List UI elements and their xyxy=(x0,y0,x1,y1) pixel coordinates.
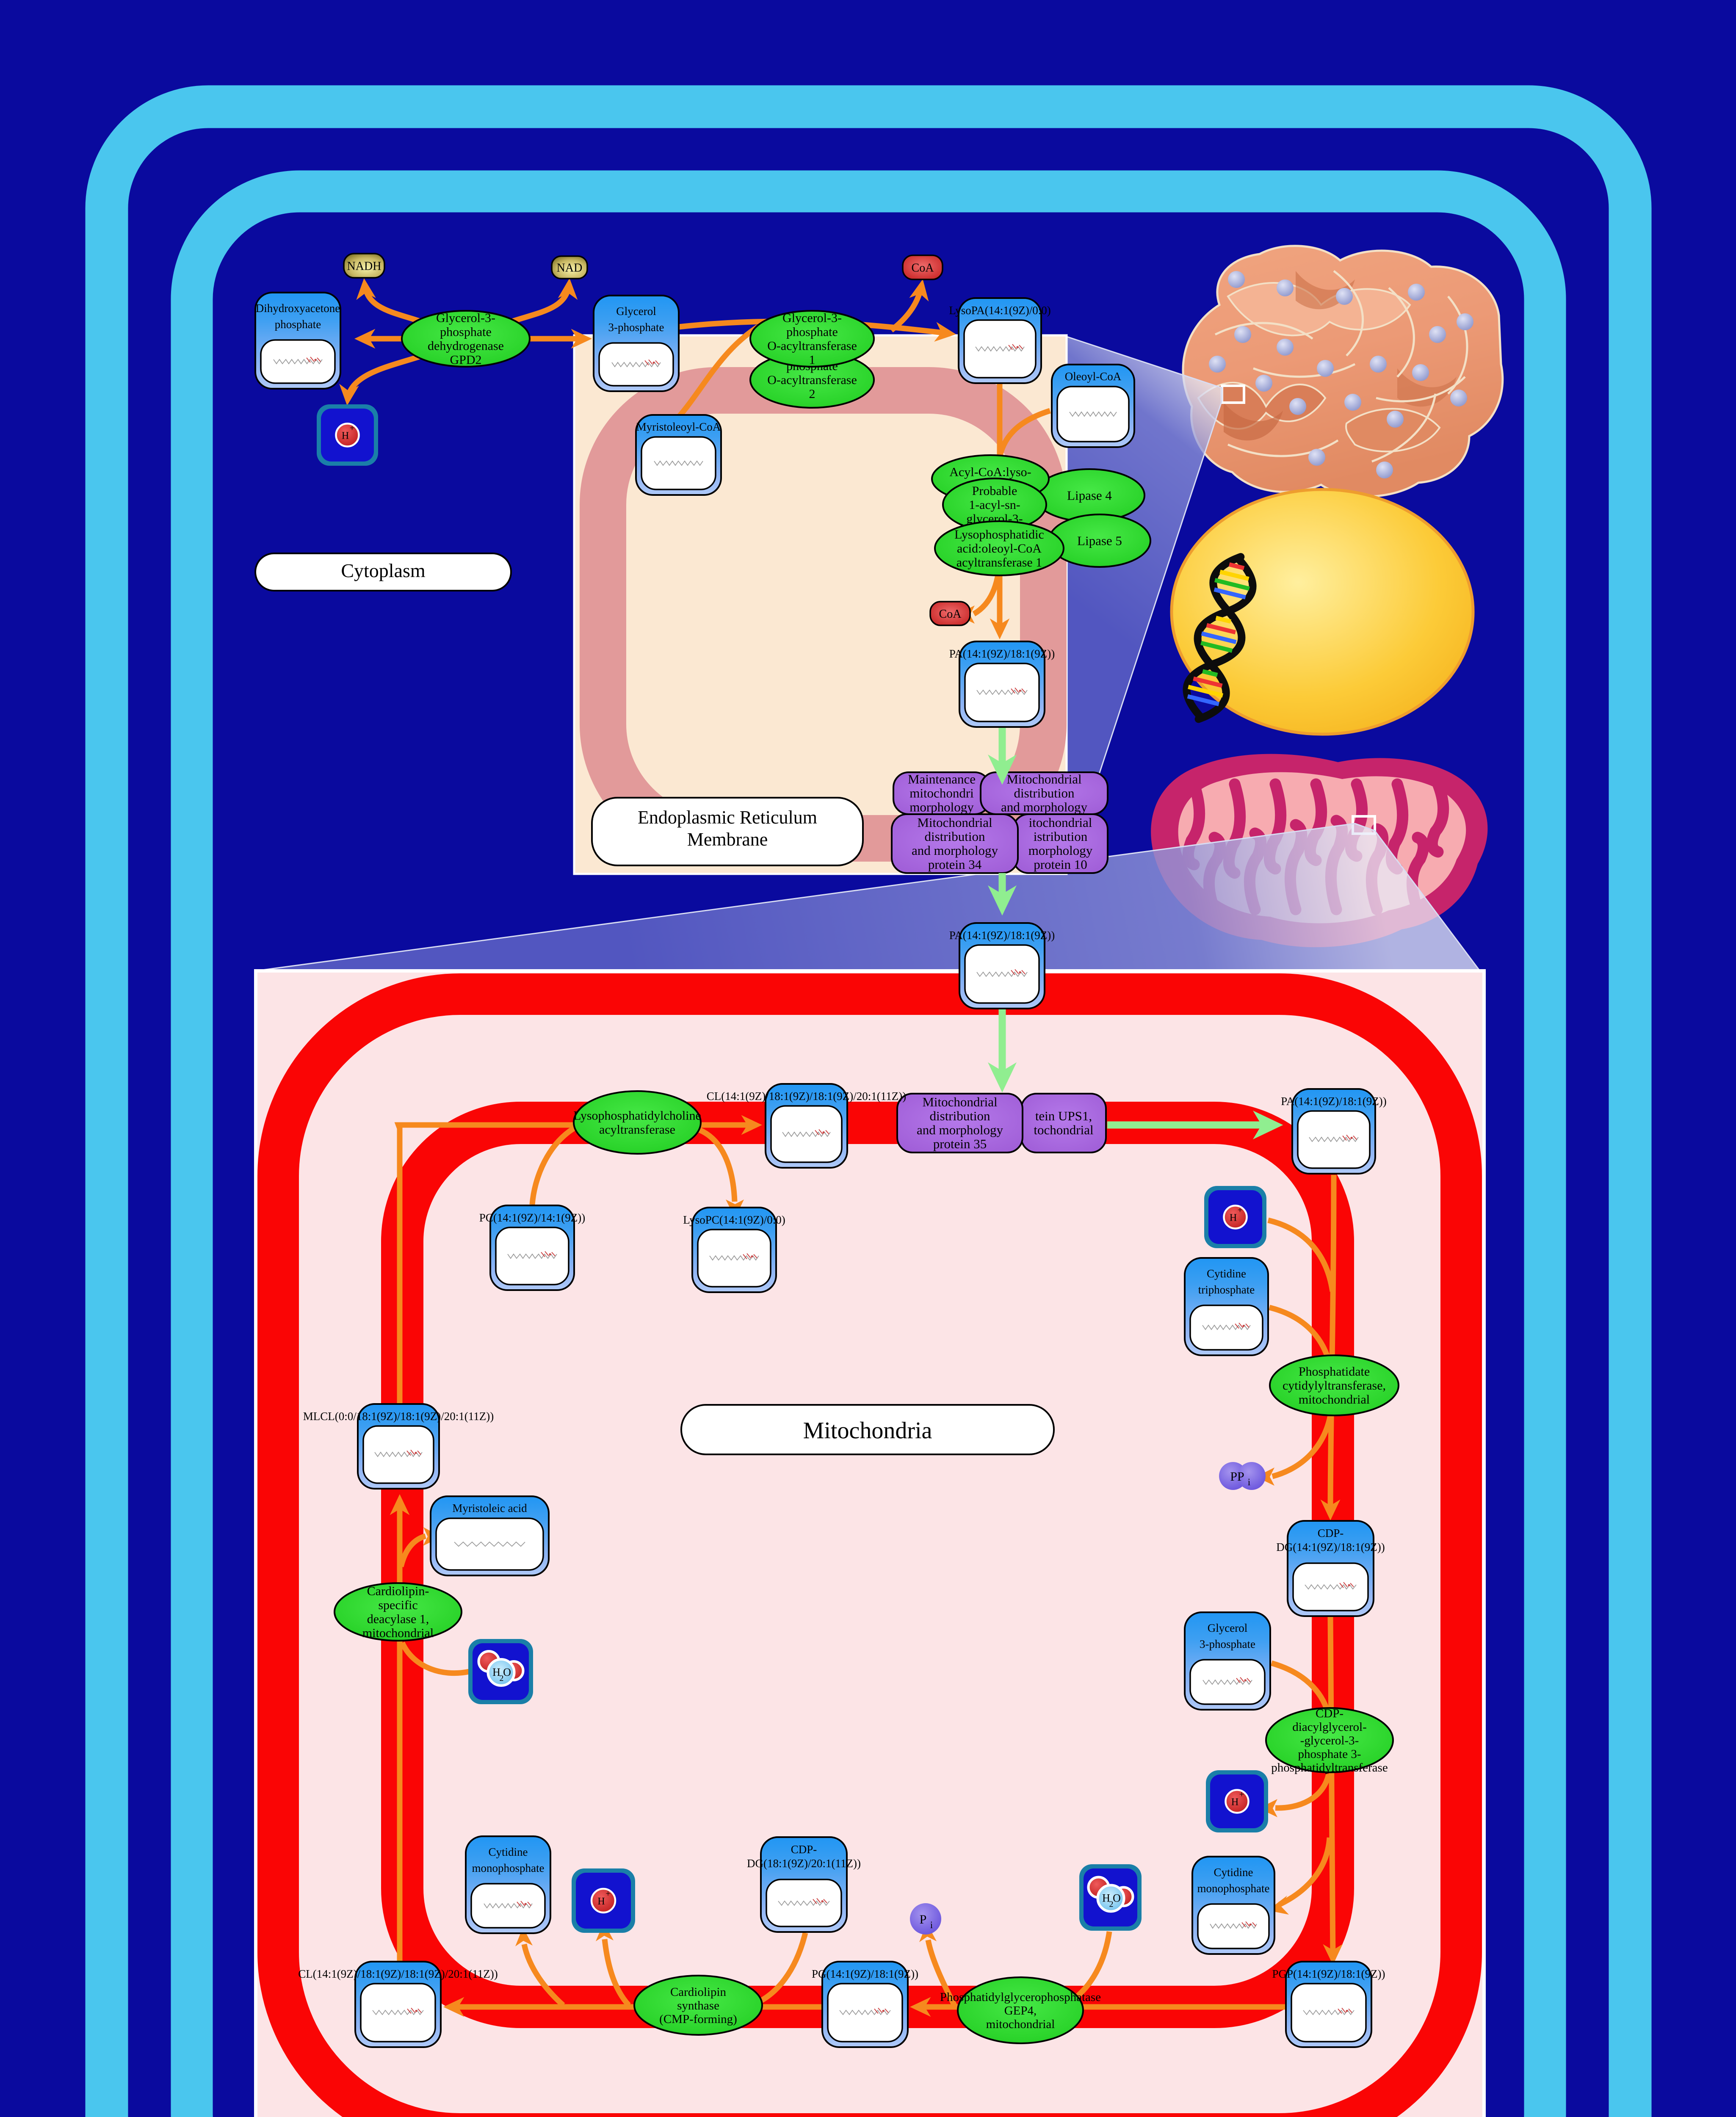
svg-text:Mitochondria: Mitochondria xyxy=(803,1418,932,1444)
svg-text:Mitochondrial: Mitochondrial xyxy=(917,815,992,830)
svg-text:triphosphate: triphosphate xyxy=(1198,1283,1255,1296)
svg-text:itochondrial: itochondrial xyxy=(1029,815,1092,830)
svg-text:Endoplasmic Reticulum: Endoplasmic Reticulum xyxy=(638,807,817,828)
svg-text:Probable: Probable xyxy=(972,484,1017,498)
svg-text:O-acyltransferase: O-acyltransferase xyxy=(767,373,857,387)
svg-text:Lipase 5: Lipase 5 xyxy=(1077,533,1122,548)
svg-text:deacylase 1,: deacylase 1, xyxy=(367,1612,429,1626)
svg-text:O-acyltransferase: O-acyltransferase xyxy=(767,339,857,353)
svg-text:i: i xyxy=(930,1920,933,1930)
svg-text:GEP4,: GEP4, xyxy=(1004,2004,1037,2018)
svg-text:Cytoplasm: Cytoplasm xyxy=(341,560,426,581)
svg-text:Myristoleic acid: Myristoleic acid xyxy=(452,1502,527,1515)
svg-text:(CMP-forming): (CMP-forming) xyxy=(659,2012,737,2026)
svg-text:H: H xyxy=(1231,1797,1238,1808)
svg-text:and morphology: and morphology xyxy=(917,1122,1003,1137)
svg-text:CDP-: CDP- xyxy=(1316,1707,1343,1720)
svg-text:and morphology: and morphology xyxy=(912,843,998,858)
svg-text:+: + xyxy=(1239,1789,1244,1799)
svg-text:CoA: CoA xyxy=(939,608,962,621)
svg-text:LysoPA(14:1(9Z)/0:0): LysoPA(14:1(9Z)/0:0) xyxy=(949,304,1051,317)
svg-text:Mitochondrial: Mitochondrial xyxy=(1006,772,1081,787)
svg-text:Acyl-CoA:lyso-: Acyl-CoA:lyso- xyxy=(949,465,1031,479)
svg-text:diacylglycerol-: diacylglycerol- xyxy=(1292,1720,1367,1734)
svg-text:tein UPS1,: tein UPS1, xyxy=(1035,1108,1092,1123)
svg-text:+: + xyxy=(605,1888,611,1899)
svg-text:+: + xyxy=(350,423,355,433)
svg-text:cytidylyltransferase,: cytidylyltransferase, xyxy=(1283,1379,1386,1393)
svg-text:acyltransferase: acyltransferase xyxy=(599,1123,675,1137)
svg-text:mitochondrial: mitochondrial xyxy=(362,1626,434,1640)
svg-text:mitochondrial: mitochondrial xyxy=(1299,1393,1370,1407)
svg-text:Membrane: Membrane xyxy=(687,829,768,850)
svg-text:H: H xyxy=(342,431,349,442)
svg-text:NAD: NAD xyxy=(557,262,583,275)
svg-text:phosphate 3-: phosphate 3- xyxy=(1298,1747,1361,1761)
svg-text:Cytidine: Cytidine xyxy=(489,1846,528,1858)
svg-text:CDP-: CDP- xyxy=(1318,1527,1344,1539)
svg-text:Glycerol-3-: Glycerol-3- xyxy=(782,311,842,325)
svg-text:1: 1 xyxy=(809,353,815,367)
svg-text:phosphate: phosphate xyxy=(786,325,838,339)
svg-text:DG(14:1(9Z)/18:1(9Z)): DG(14:1(9Z)/18:1(9Z)) xyxy=(1276,1541,1385,1553)
svg-text:CL(14:1(9Z)/18:1(9Z)/18:1(9Z)/: CL(14:1(9Z)/18:1(9Z)/18:1(9Z)/20:1(11Z)) xyxy=(298,1968,498,1980)
svg-text:3-phosphate: 3-phosphate xyxy=(608,321,664,334)
svg-text:PA(14:1(9Z)/18:1(9Z)): PA(14:1(9Z)/18:1(9Z)) xyxy=(949,929,1055,942)
svg-text:protein 34: protein 34 xyxy=(928,857,982,872)
svg-text:CL(14:1(9Z)/18:1(9Z)/18:1(9Z)/: CL(14:1(9Z)/18:1(9Z)/18:1(9Z)/20:1(11Z)) xyxy=(707,1090,906,1103)
svg-text:PA(14:1(9Z)/18:1(9Z)): PA(14:1(9Z)/18:1(9Z)) xyxy=(1281,1095,1386,1108)
svg-text:Cardiolipin-: Cardiolipin- xyxy=(367,1584,429,1598)
svg-text:protein 35: protein 35 xyxy=(933,1136,987,1151)
svg-text:Lysophosphatidylcholine: Lysophosphatidylcholine xyxy=(573,1109,701,1123)
svg-text:P: P xyxy=(920,1912,927,1926)
svg-text:+: + xyxy=(1238,1205,1243,1215)
svg-text:monophosphate: monophosphate xyxy=(472,1862,545,1874)
svg-text:-glycerol-3-: -glycerol-3- xyxy=(1300,1734,1359,1747)
svg-text:Glycerol: Glycerol xyxy=(616,305,656,318)
svg-text:distribution: distribution xyxy=(1014,786,1075,801)
svg-text:phosphate: phosphate xyxy=(275,318,321,331)
svg-text:DG(18:1(9Z)/20:1(11Z)): DG(18:1(9Z)/20:1(11Z)) xyxy=(747,1857,861,1870)
svg-text:PA(14:1(9Z)/18:1(9Z)): PA(14:1(9Z)/18:1(9Z)) xyxy=(949,647,1055,660)
svg-text:GPD2: GPD2 xyxy=(450,353,481,367)
svg-text:LysoPC(14:1(9Z)/0:0): LysoPC(14:1(9Z)/0:0) xyxy=(683,1213,785,1226)
svg-text:specific: specific xyxy=(378,1598,417,1612)
svg-text:mitochondri: mitochondri xyxy=(909,786,974,801)
svg-text:acyltransferase 1: acyltransferase 1 xyxy=(956,556,1042,569)
svg-text:protein 10: protein 10 xyxy=(1034,857,1087,872)
svg-text:CDP-: CDP- xyxy=(791,1843,817,1856)
svg-text:Cytidine: Cytidine xyxy=(1207,1267,1246,1280)
svg-text:3-phosphate: 3-phosphate xyxy=(1200,1638,1255,1650)
svg-text:1-acyl-sn-: 1-acyl-sn- xyxy=(969,498,1020,512)
svg-text:Myristoleoyl-CoA: Myristoleoyl-CoA xyxy=(636,420,721,433)
svg-text:phosphatidyltransferase: phosphatidyltransferase xyxy=(1271,1761,1388,1774)
svg-text:PC(14:1(9Z)/14:1(9Z)): PC(14:1(9Z)/14:1(9Z)) xyxy=(479,1211,585,1224)
svg-text:PG(14:1(9Z)/18:1(9Z)): PG(14:1(9Z)/18:1(9Z)) xyxy=(812,1968,918,1980)
svg-text:i: i xyxy=(1248,1477,1250,1487)
svg-text:H: H xyxy=(597,1896,605,1907)
svg-text:monophosphate: monophosphate xyxy=(1197,1882,1270,1895)
svg-text:and morphology: and morphology xyxy=(1001,800,1088,815)
svg-text:Oleoyl-CoA: Oleoyl-CoA xyxy=(1065,370,1122,383)
svg-text:dehydrogenase: dehydrogenase xyxy=(428,339,504,353)
svg-text:mitochondrial: mitochondrial xyxy=(986,2018,1055,2031)
svg-text:CoA: CoA xyxy=(912,262,934,275)
svg-text:acid:oleoyl-CoA: acid:oleoyl-CoA xyxy=(957,542,1042,556)
svg-text:morphology: morphology xyxy=(1028,843,1093,858)
svg-text:Glycerol: Glycerol xyxy=(1208,1622,1247,1634)
svg-text:NADH: NADH xyxy=(347,260,381,273)
svg-text:O: O xyxy=(1113,1892,1121,1904)
svg-text:Maintenance: Maintenance xyxy=(908,772,976,787)
svg-text:Cardiolipin: Cardiolipin xyxy=(670,1985,727,1999)
svg-text:distribution: distribution xyxy=(930,1108,990,1123)
svg-text:distribution: distribution xyxy=(925,829,985,844)
svg-text:phosphate: phosphate xyxy=(440,325,492,339)
svg-text:2: 2 xyxy=(809,387,815,401)
svg-text:istribution: istribution xyxy=(1034,829,1088,844)
svg-text:Cytidine: Cytidine xyxy=(1214,1866,1253,1879)
svg-text:O: O xyxy=(503,1666,511,1678)
svg-text:Dihydroxyacetone: Dihydroxyacetone xyxy=(256,302,340,315)
svg-text:Lipase 4: Lipase 4 xyxy=(1067,488,1112,503)
svg-text:MLCL(0:0/18:1(9Z)/18:1(9Z)/20:: MLCL(0:0/18:1(9Z)/18:1(9Z)/20:1(11Z)) xyxy=(303,1410,494,1423)
svg-text:Mitochondrial: Mitochondrial xyxy=(922,1094,997,1109)
svg-text:PP: PP xyxy=(1230,1470,1244,1484)
svg-text:Phosphatidate: Phosphatidate xyxy=(1299,1365,1370,1379)
svg-text:Phosphatidylglycerophosphatase: Phosphatidylglycerophosphatase xyxy=(940,1990,1101,2004)
svg-text:synthase: synthase xyxy=(677,1999,719,2012)
svg-text:Glycerol-3-: Glycerol-3- xyxy=(436,311,495,325)
svg-text:tochondrial: tochondrial xyxy=(1034,1122,1093,1137)
svg-text:PGP(14:1(9Z)/18:1(9Z)): PGP(14:1(9Z)/18:1(9Z)) xyxy=(1272,1968,1385,1980)
svg-text:Lysophosphatidic: Lysophosphatidic xyxy=(954,528,1044,542)
svg-text:morphology: morphology xyxy=(909,800,974,815)
svg-text:H: H xyxy=(1230,1213,1237,1224)
